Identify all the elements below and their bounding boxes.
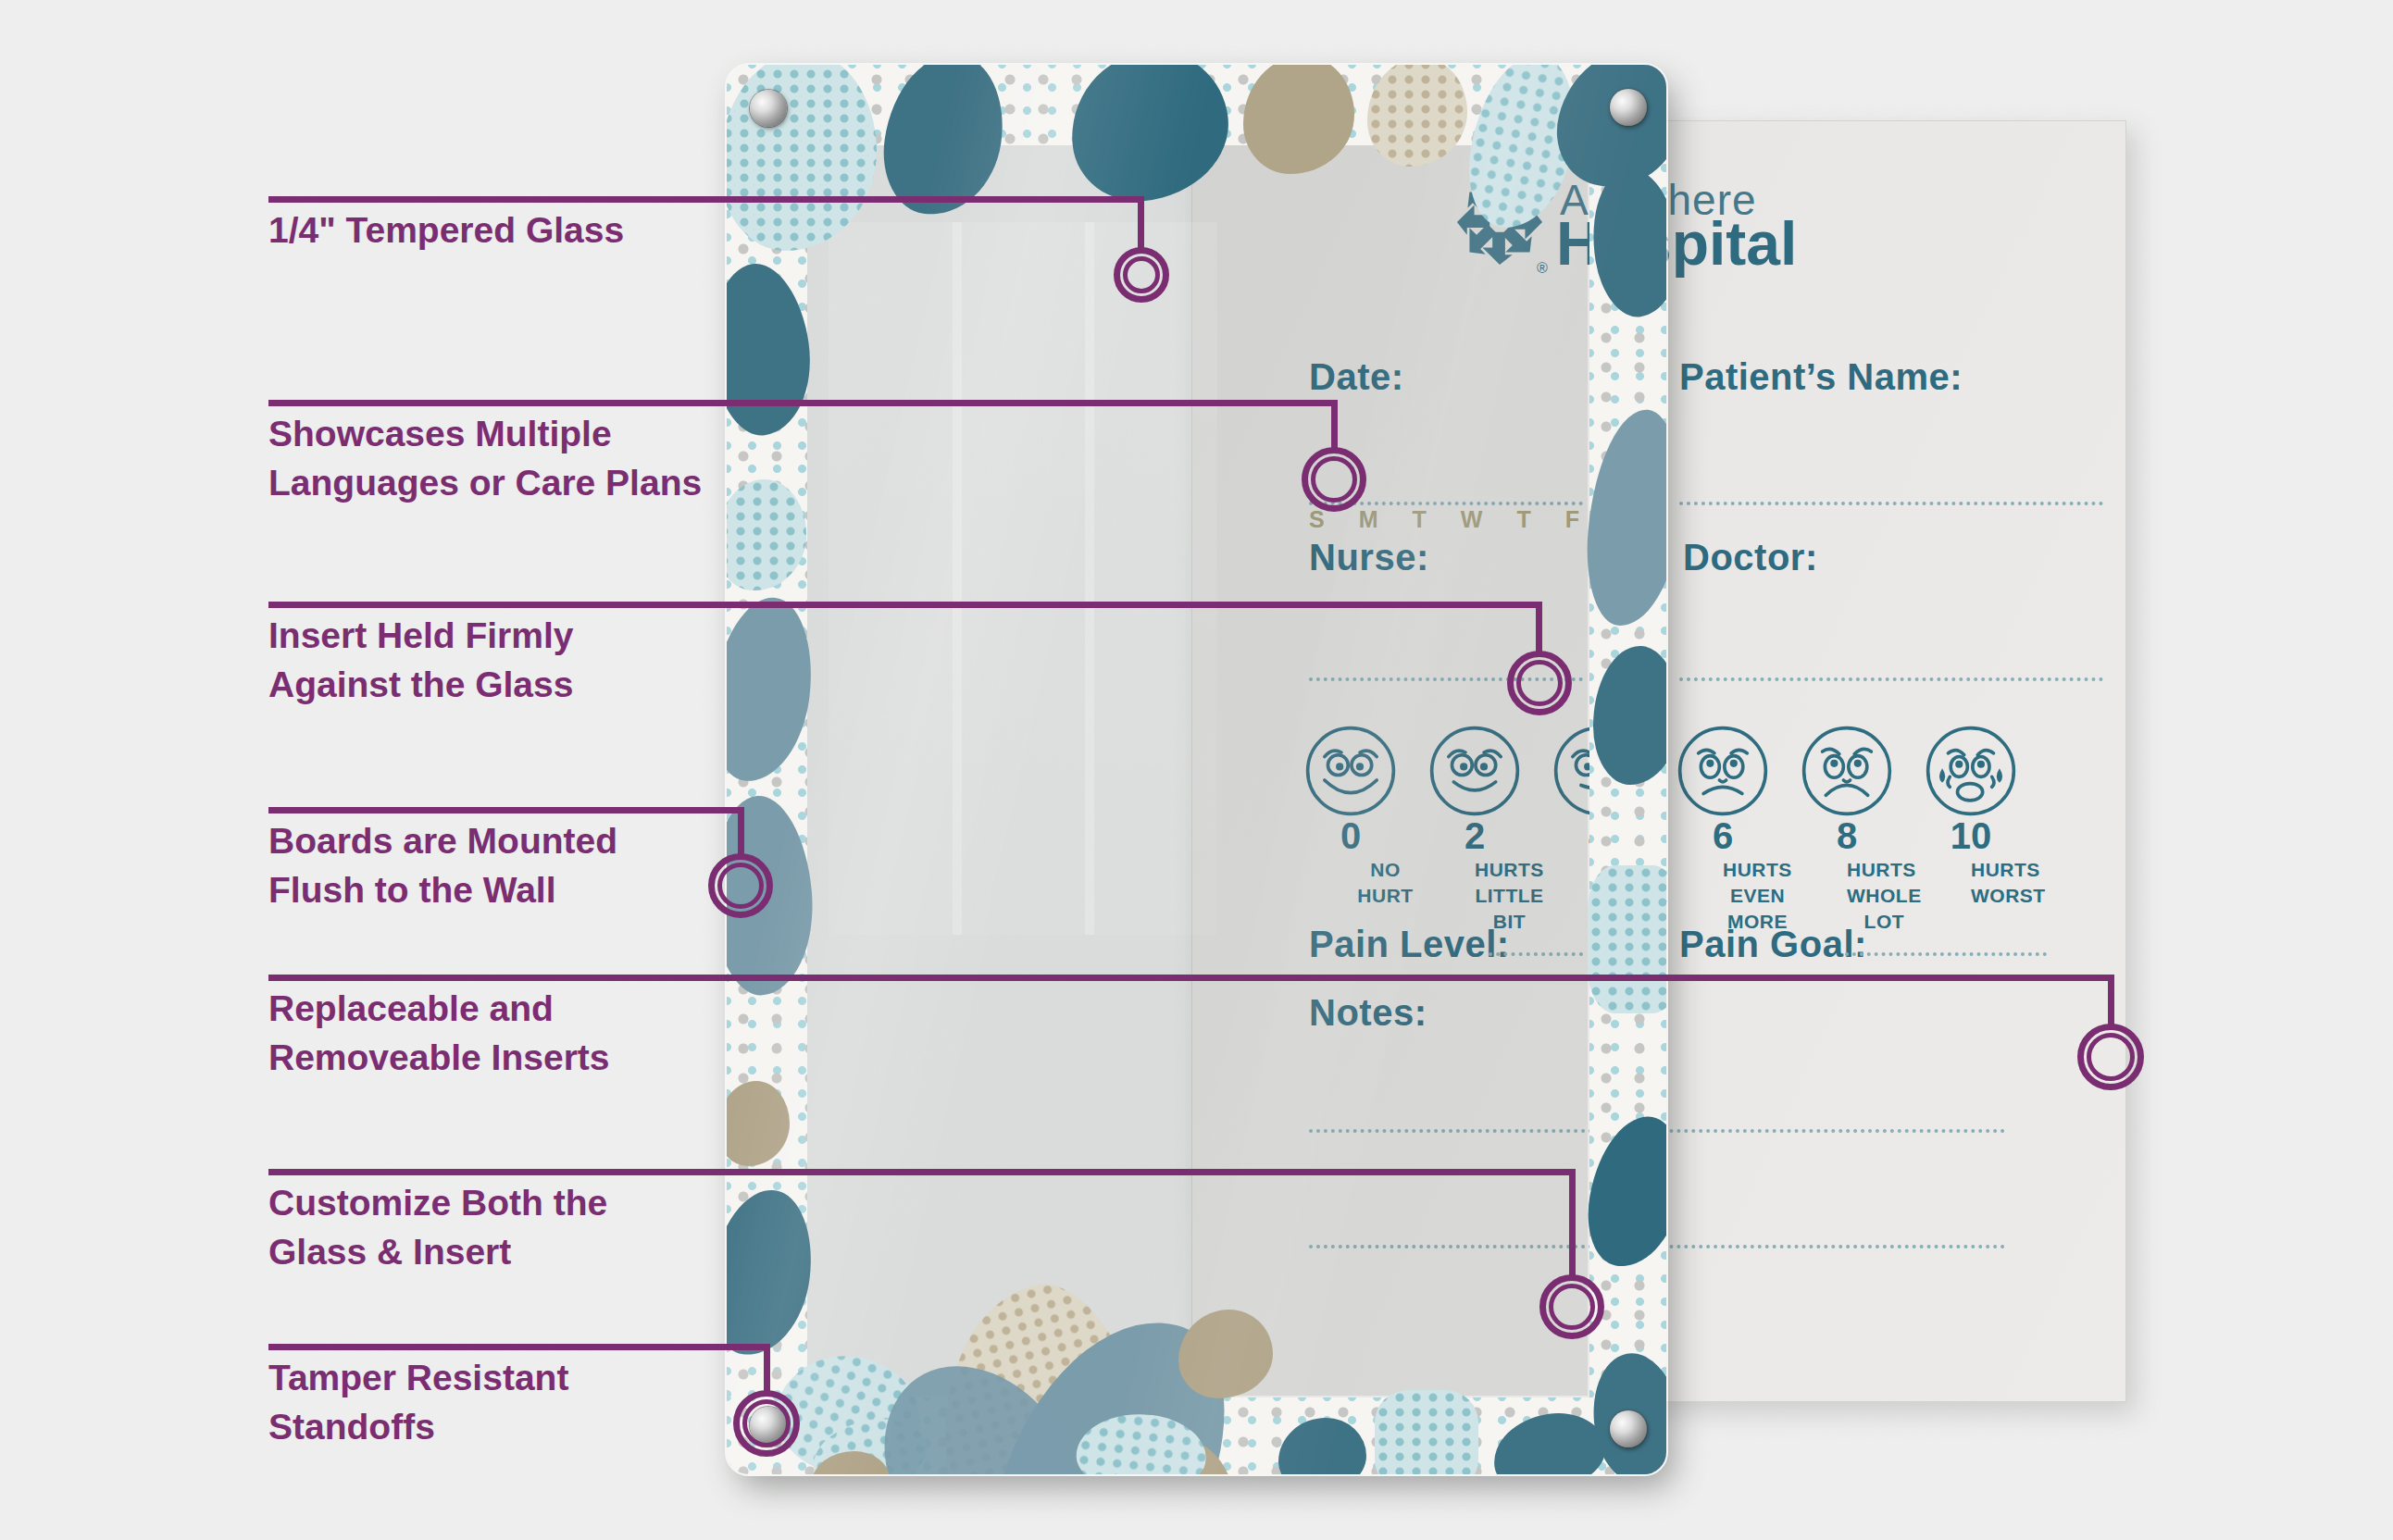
callout-line-standoffs <box>268 1344 770 1350</box>
feature-callouts: 1/4" Tempered Glass Showcases MultipleLa… <box>0 0 2393 1540</box>
callout-ring-languages <box>1302 447 1366 512</box>
callout-ring-tempered-glass <box>1114 247 1169 303</box>
callout-label-standoffs: Tamper ResistantStandoffs <box>268 1353 568 1451</box>
callout-drop-tempered-glass <box>1138 196 1144 250</box>
callout-label-mounted-flush: Boards are MountedFlush to the Wall <box>268 816 617 914</box>
callout-line-customize <box>268 1169 1576 1175</box>
callout-line-tempered-glass <box>268 196 1144 203</box>
product-diagram: Anywhere Hospital ® Date: Patient’s Name… <box>0 0 2393 1540</box>
callout-drop-standoffs <box>764 1344 770 1393</box>
callout-line-insert-held <box>268 602 1542 608</box>
callout-drop-insert-held <box>1536 602 1542 653</box>
callout-drop-languages <box>1331 400 1338 450</box>
callout-label-customize: Customize Both theGlass & Insert <box>268 1178 607 1276</box>
callout-ring-standoffs <box>733 1390 800 1457</box>
callout-label-insert-held: Insert Held FirmlyAgainst the Glass <box>268 611 573 709</box>
callout-ring-replaceable <box>2077 1024 2144 1090</box>
callout-line-languages <box>268 400 1338 406</box>
callout-drop-customize <box>1569 1169 1576 1277</box>
callout-ring-customize <box>1539 1274 1604 1339</box>
callout-ring-mounted-flush <box>708 853 773 918</box>
callout-line-replaceable <box>268 975 2114 981</box>
callout-drop-replaceable <box>2108 975 2114 1026</box>
callout-line-mounted-flush <box>268 807 744 813</box>
callout-drop-mounted-flush <box>738 807 744 856</box>
callout-label-replaceable: Replaceable andRemoveable Inserts <box>268 984 610 1082</box>
callout-label-languages: Showcases MultipleLanguages or Care Plan… <box>268 409 702 507</box>
callout-label-tempered-glass: 1/4" Tempered Glass <box>268 205 624 255</box>
callout-ring-insert-held <box>1507 651 1572 715</box>
